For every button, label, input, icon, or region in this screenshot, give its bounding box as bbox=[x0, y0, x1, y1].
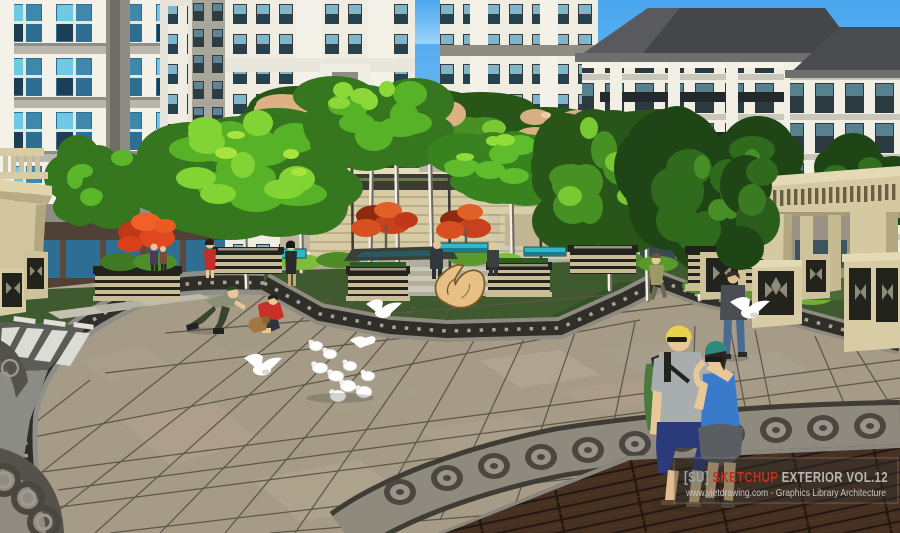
svg-text:[SU] SKETCHUP EXTERIOR VOL.12: [SU] SKETCHUP EXTERIOR VOL.12 bbox=[684, 470, 888, 486]
svg-text:www.vietdrawing.com - Graphics: www.vietdrawing.com - Graphics Library A… bbox=[685, 488, 886, 499]
